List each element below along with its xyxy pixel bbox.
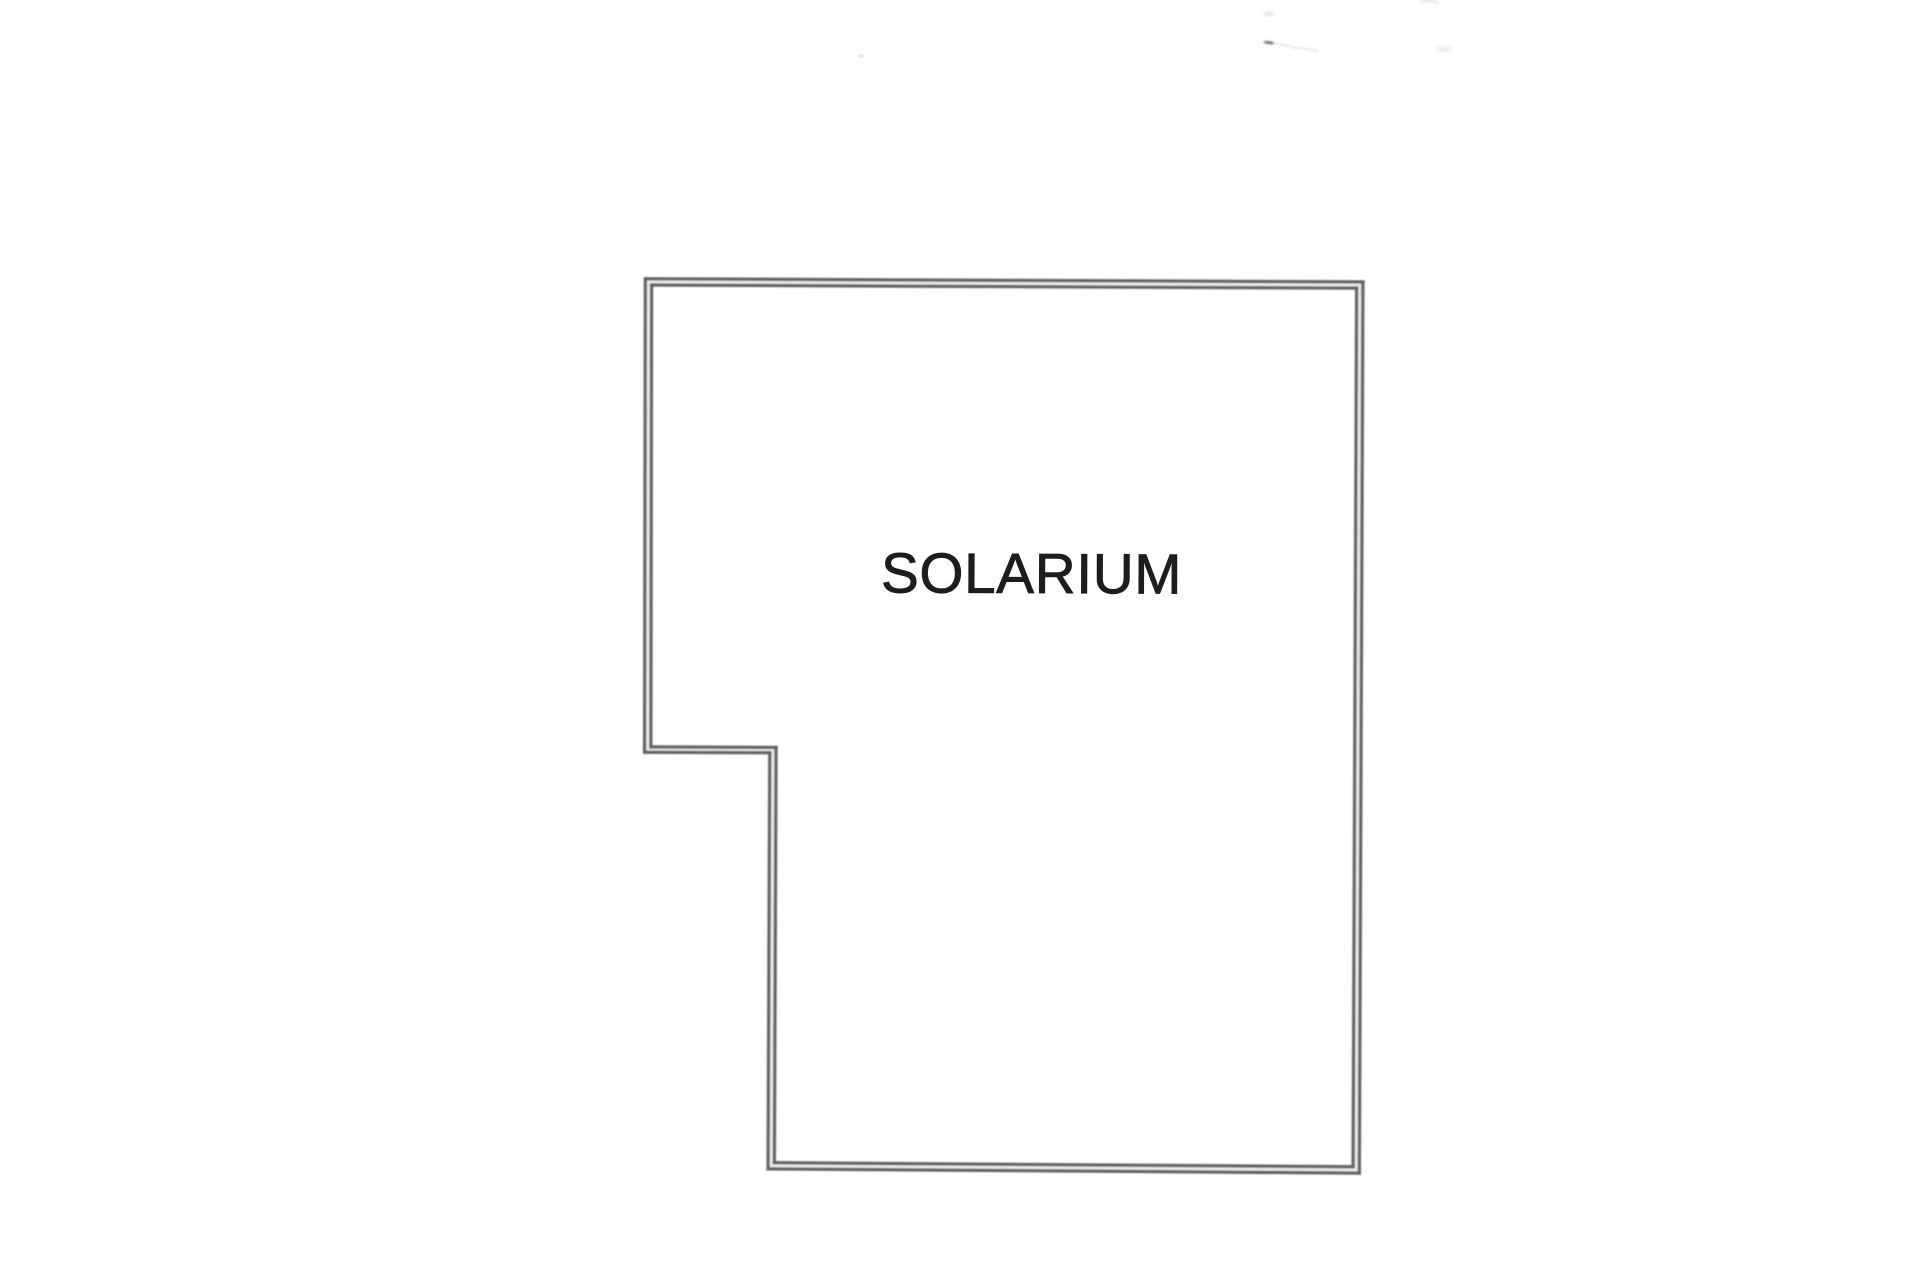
- svg-text:SOLARIUM: SOLARIUM: [881, 541, 1182, 605]
